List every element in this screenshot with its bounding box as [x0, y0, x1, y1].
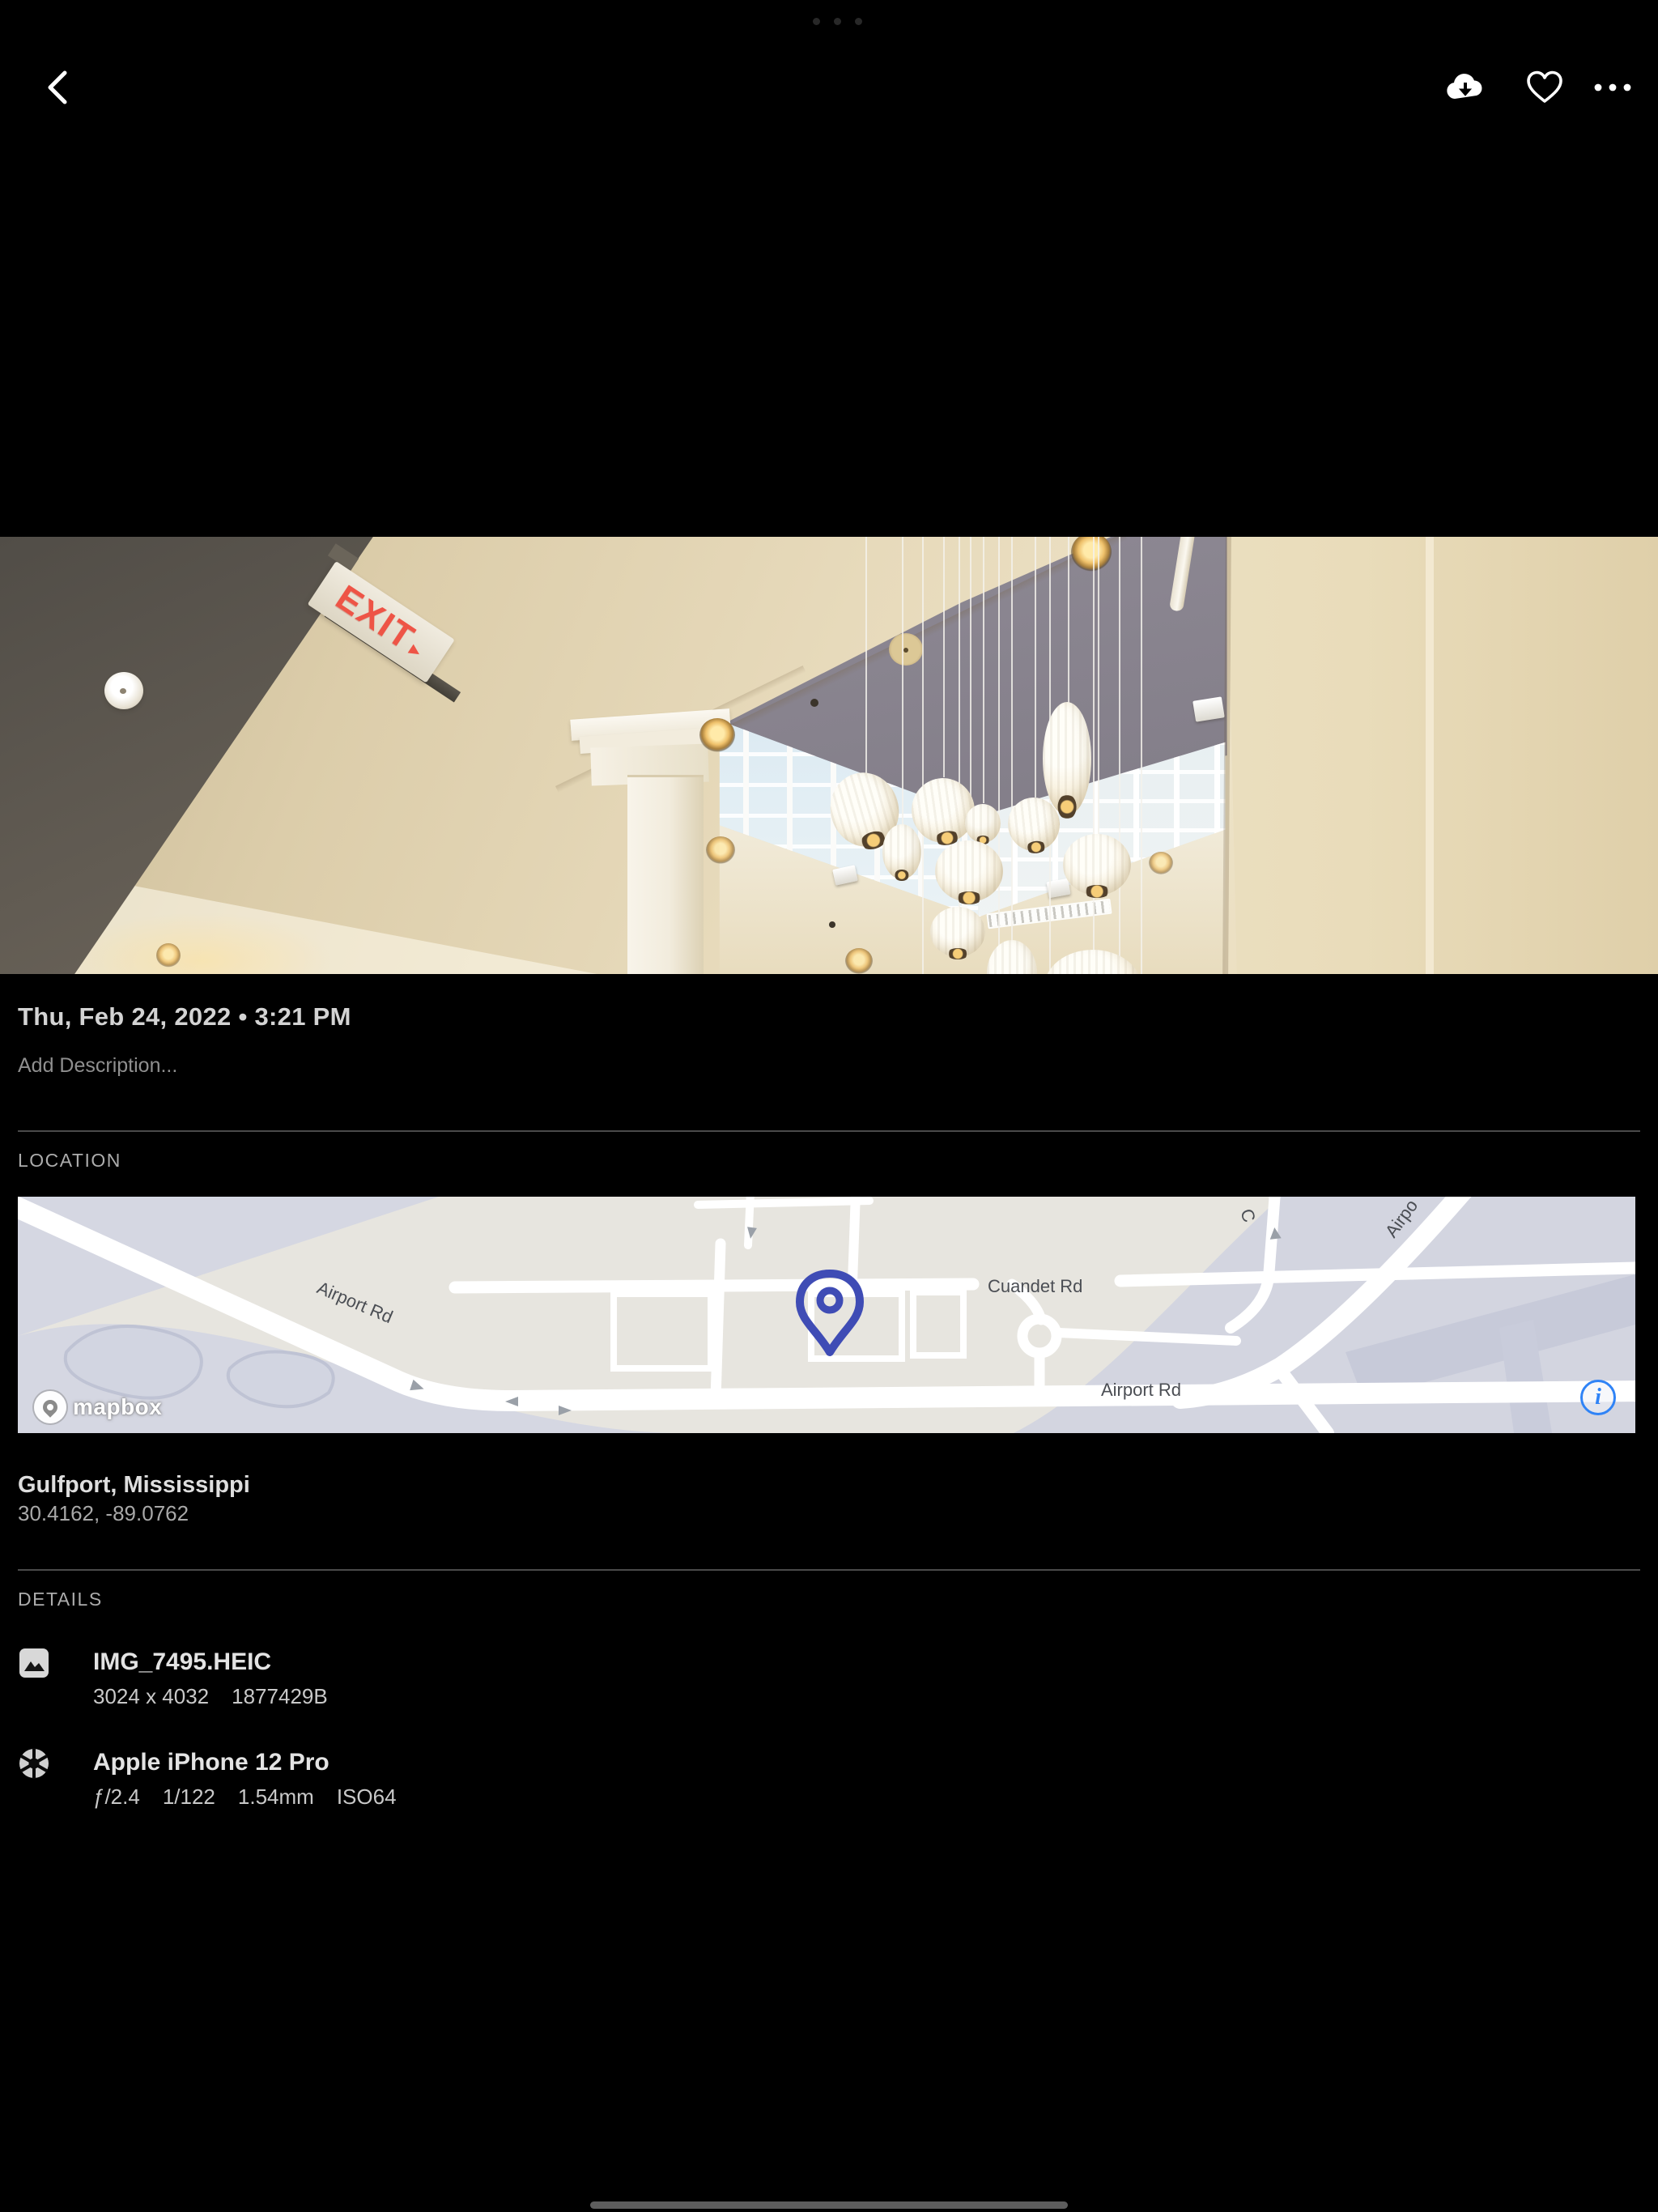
wall-speaker: [1192, 696, 1225, 721]
cloud-download-icon: [1444, 71, 1486, 104]
camera-aperture: ƒ/2.4: [93, 1784, 140, 1810]
mapbox-wordmark: mapbox: [73, 1394, 162, 1420]
download-button[interactable]: [1444, 68, 1486, 107]
map-label-airport-rd-bottom: Airport Rd: [1101, 1380, 1181, 1400]
map-label-cuandet-rd: Cuandet Rd: [988, 1276, 1082, 1296]
recessed-light: [1149, 852, 1173, 874]
column-shaft: [627, 775, 704, 974]
file-name: IMG_7495.HEIC: [93, 1648, 271, 1676]
photo-viewer[interactable]: EXIT ▸: [0, 537, 1658, 974]
camera-focal-length: 1.54mm: [238, 1784, 314, 1810]
camera-aperture-icon: [18, 1747, 50, 1780]
map-canvas: Airport Rd Cuandet Rd Airport Rd Airpo C: [18, 1197, 1635, 1433]
favorite-button[interactable]: [1524, 68, 1566, 107]
camera-iso: ISO64: [337, 1784, 397, 1810]
mapbox-logo-icon: [34, 1391, 66, 1423]
file-info: 3024 x 4032 1877429B: [93, 1684, 328, 1709]
location-header: LOCATION: [18, 1150, 121, 1172]
location-map[interactable]: Airport Rd Cuandet Rd Airport Rd Airpo C…: [18, 1197, 1635, 1433]
image-file-icon: [18, 1647, 50, 1679]
pendant-lamp: [965, 804, 1001, 843]
pendant-lamp: [1063, 834, 1131, 895]
toolbar: [0, 0, 1658, 170]
camera-name: Apple iPhone 12 Pro: [93, 1749, 329, 1776]
recessed-light: [156, 943, 181, 968]
home-indicator[interactable]: [590, 2201, 1068, 2209]
file-size: 1877429B: [232, 1684, 328, 1709]
location-place: Gulfport, Mississippi: [18, 1472, 250, 1499]
exit-sign-text: EXIT: [329, 577, 423, 658]
heart-icon: [1526, 70, 1563, 104]
photo-date: Thu, Feb 24, 2022 • 3:21 PM: [18, 1002, 351, 1032]
ceiling-vent: [889, 633, 923, 666]
divider: [18, 1569, 1640, 1571]
back-chevron-icon: [39, 66, 81, 108]
camera-shutter: 1/122: [163, 1784, 215, 1810]
mapbox-attribution[interactable]: mapbox: [34, 1391, 162, 1423]
details-header: DETAILS: [18, 1589, 103, 1610]
exit-sign: EXIT ▸: [325, 555, 519, 725]
file-dimensions: 3024 x 4032: [93, 1684, 209, 1709]
recessed-light: [845, 948, 873, 974]
back-button[interactable]: [39, 66, 81, 108]
pendant-lamp: [1043, 702, 1091, 815]
more-button[interactable]: [1592, 68, 1634, 107]
map-info-button[interactable]: i: [1580, 1380, 1616, 1415]
pendant-lamp: [930, 907, 985, 957]
divider: [18, 1130, 1640, 1132]
description-input[interactable]: Add Description...: [18, 1054, 177, 1078]
pendant-lamp: [935, 840, 1003, 902]
location-coordinates: 30.4162, -89.0762: [18, 1501, 189, 1526]
camera-info: ƒ/2.4 1/122 1.54mm ISO64: [93, 1784, 397, 1810]
ellipsis-icon: [1592, 82, 1634, 93]
pendant-lamp: [882, 824, 921, 879]
